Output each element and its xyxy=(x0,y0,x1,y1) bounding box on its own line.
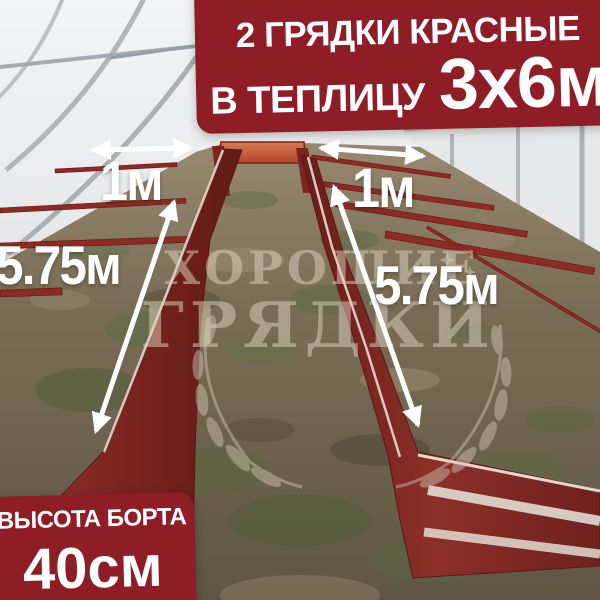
top-banner: 2 ГРЯДКИ КРАСНЫЕ В ТЕПЛИЦУ 3х6м xyxy=(194,0,600,134)
right-bed-length-label: 5.75м xyxy=(374,258,498,313)
left-bed-width-label: 1м xyxy=(100,153,162,209)
bottom-banner: ВЫСОТА БОРТА 40см xyxy=(0,492,197,600)
top-banner-line2-prefix: В ТЕПЛИЦУ xyxy=(210,79,425,120)
left-bed-length-label: 5.75м xyxy=(0,238,120,293)
top-banner-line2: В ТЕПЛИЦУ 3х6м xyxy=(203,47,600,124)
bottom-banner-value: 40см xyxy=(22,533,163,600)
top-banner-size-value: 3х6м xyxy=(438,47,600,119)
promo-image: ХОРОШИЕ ГРЯДКИ 1м 1м 5.75м 5.75м 2 ГРЯДК… xyxy=(0,0,600,600)
right-bed-width-label: 1м xyxy=(352,160,414,216)
bottom-banner-label: ВЫСОТА БОРТА xyxy=(0,503,187,536)
